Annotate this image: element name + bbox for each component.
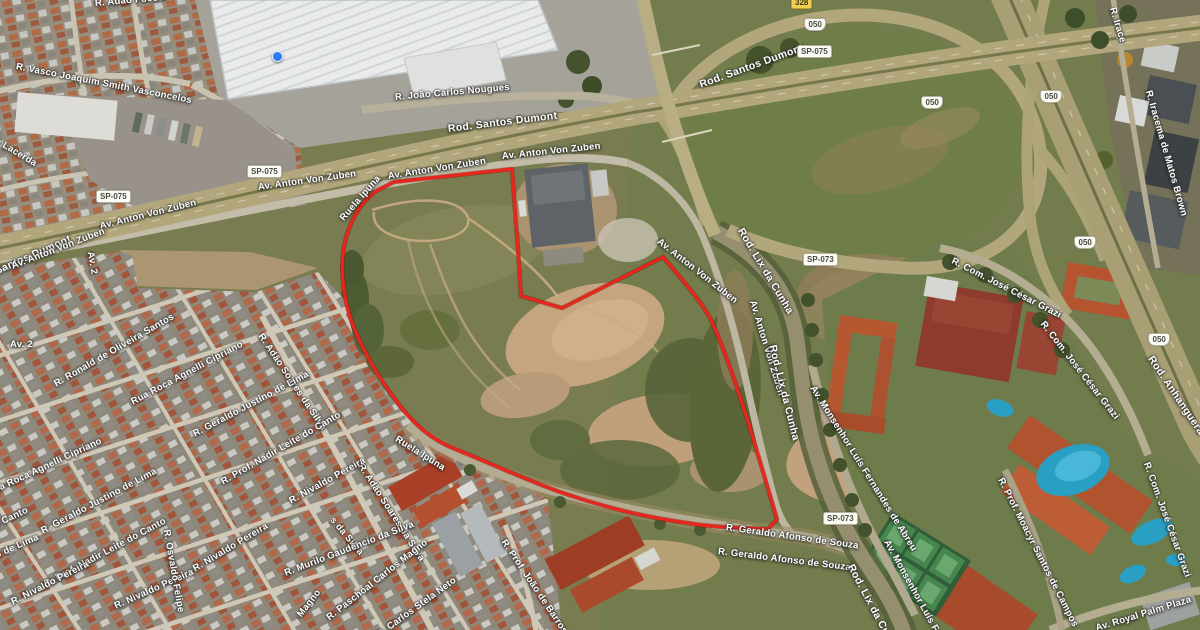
route-badge-sp073: SP-073	[823, 512, 858, 525]
route-badge-sp075: SP-075	[797, 45, 832, 58]
route-badge-sp075: SP-075	[247, 165, 282, 178]
route-badge-050: 050	[804, 18, 826, 31]
route-badge-050: 050	[1148, 333, 1170, 346]
satellite-map[interactable]: R. Adão Focesi R. Vasco Joaquim Smith Va…	[0, 0, 1200, 630]
route-badge-050: 050	[1074, 236, 1096, 249]
route-badge-328: 328	[791, 0, 812, 9]
route-badge-050: 050	[921, 96, 943, 109]
route-badge-sp075: SP-075	[96, 190, 131, 203]
poi-marker-icon	[272, 51, 283, 62]
route-badge-050: 050	[1040, 90, 1062, 103]
route-badge-sp073: SP-073	[803, 253, 838, 266]
map-canvas	[0, 0, 1200, 630]
